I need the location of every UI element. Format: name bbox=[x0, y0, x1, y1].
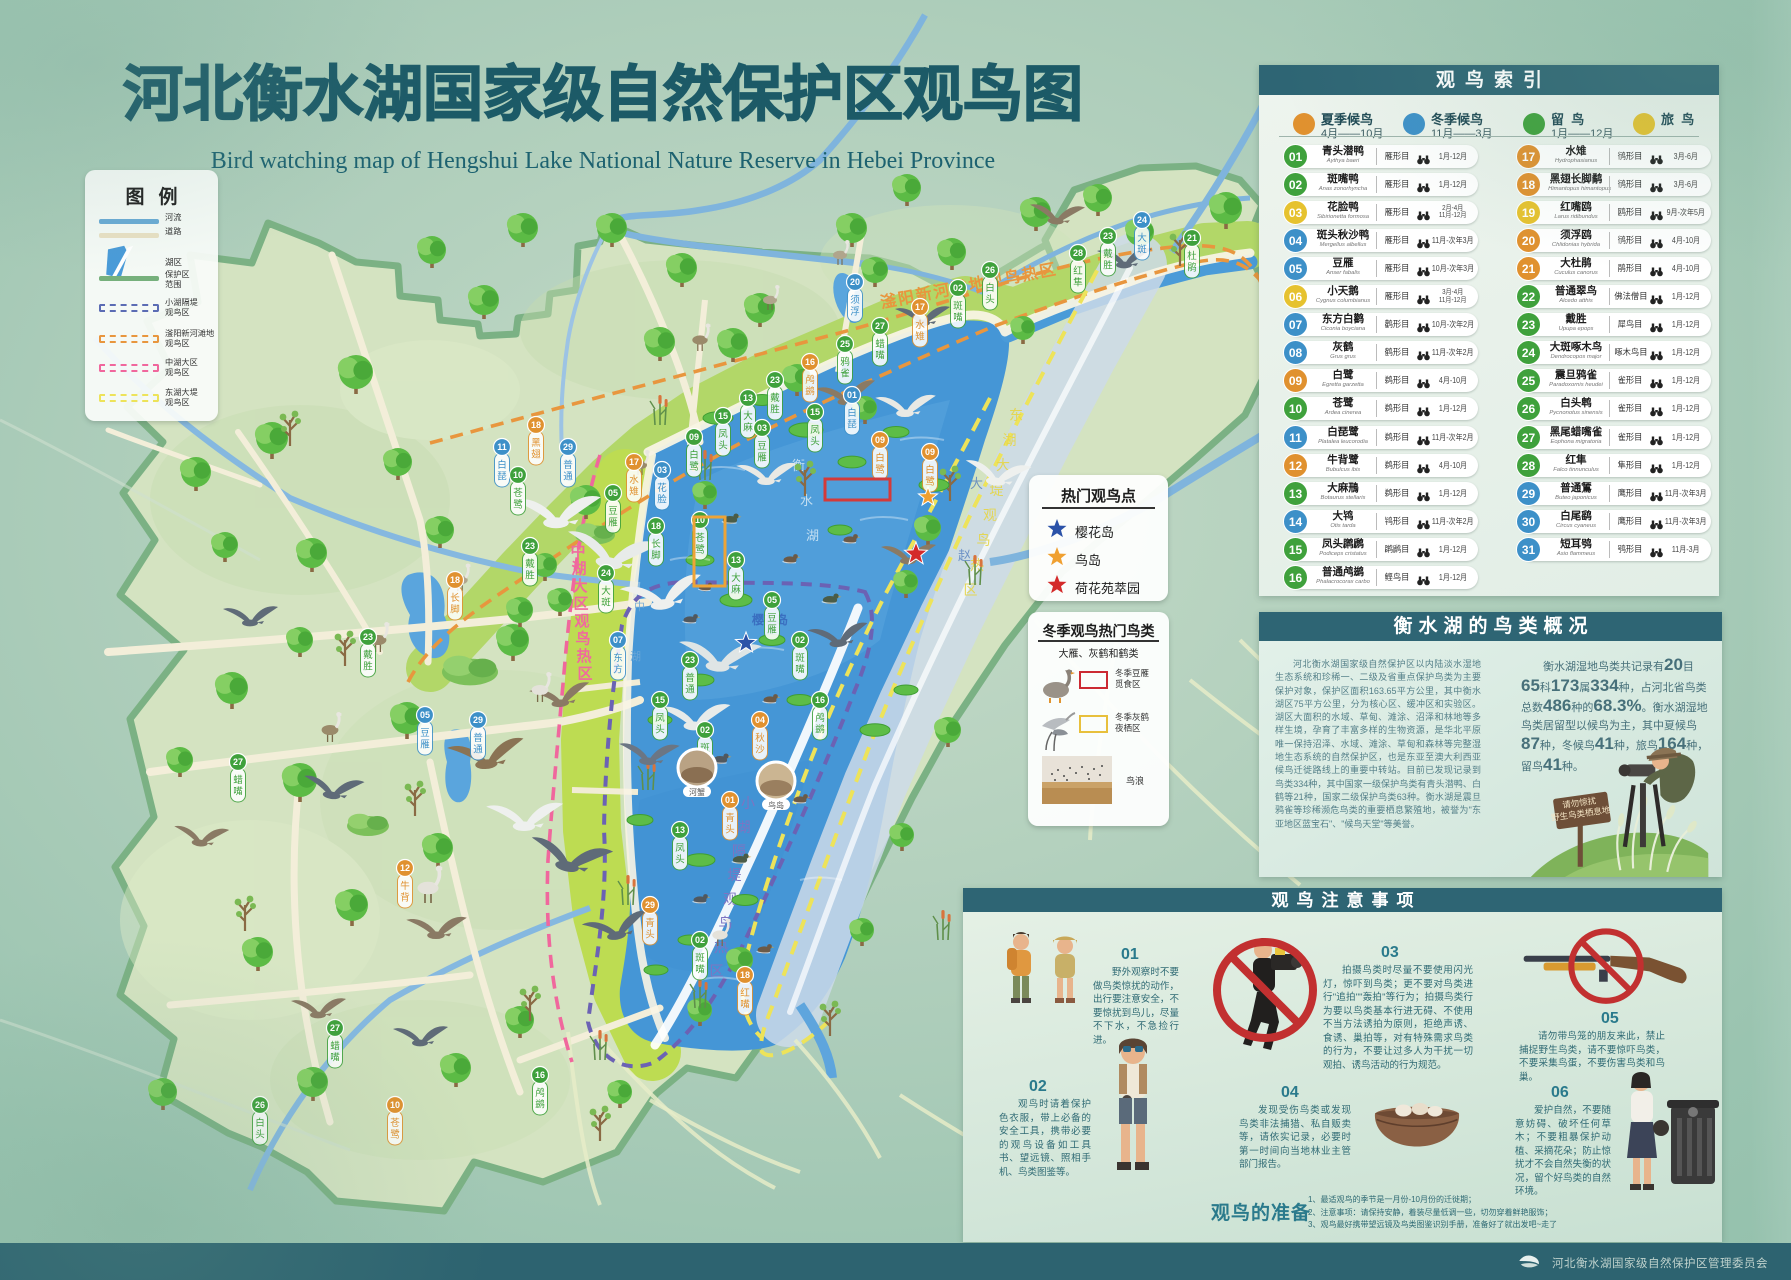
svg-text:戴: 戴 bbox=[1103, 248, 1113, 260]
svg-text:02: 02 bbox=[953, 283, 963, 293]
svg-text:蜡: 蜡 bbox=[233, 774, 243, 786]
svg-text:头: 头 bbox=[655, 724, 665, 736]
svg-text:隼: 隼 bbox=[1073, 277, 1083, 289]
svg-text:通: 通 bbox=[473, 745, 483, 756]
svg-text:沙: 沙 bbox=[755, 745, 765, 756]
svg-text:13: 13 bbox=[731, 555, 741, 565]
svg-text:白: 白 bbox=[847, 407, 857, 419]
svg-text:07: 07 bbox=[613, 635, 623, 645]
svg-text:18: 18 bbox=[450, 575, 460, 585]
svg-text:鹚: 鹚 bbox=[815, 724, 825, 736]
svg-text:雉: 雉 bbox=[629, 486, 639, 498]
svg-text:03: 03 bbox=[757, 423, 767, 433]
svg-text:红: 红 bbox=[1073, 265, 1083, 277]
svg-text:斑: 斑 bbox=[1137, 244, 1147, 256]
svg-text:中: 中 bbox=[570, 542, 585, 560]
svg-text:水: 水 bbox=[800, 493, 813, 508]
svg-text:背: 背 bbox=[400, 892, 410, 904]
svg-text:02: 02 bbox=[795, 635, 805, 645]
svg-text:16: 16 bbox=[535, 1070, 545, 1080]
svg-text:大: 大 bbox=[572, 577, 587, 595]
svg-text:鸬: 鸬 bbox=[805, 374, 815, 386]
svg-text:胜: 胜 bbox=[770, 405, 780, 416]
svg-text:白: 白 bbox=[255, 1117, 265, 1129]
svg-text:29: 29 bbox=[645, 900, 655, 910]
svg-text:湖: 湖 bbox=[571, 561, 586, 578]
svg-text:区: 区 bbox=[573, 596, 588, 613]
svg-text:大: 大 bbox=[601, 585, 611, 597]
svg-text:花: 花 bbox=[657, 482, 667, 494]
svg-text:热: 热 bbox=[576, 647, 591, 665]
svg-text:白: 白 bbox=[985, 282, 995, 294]
svg-text:黑: 黑 bbox=[531, 438, 541, 449]
svg-text:普: 普 bbox=[473, 732, 483, 744]
svg-text:翅: 翅 bbox=[531, 449, 541, 461]
svg-text:堤: 堤 bbox=[728, 867, 742, 883]
svg-text:鸟: 鸟 bbox=[719, 915, 733, 931]
svg-text:02: 02 bbox=[700, 725, 710, 735]
svg-text:15: 15 bbox=[718, 411, 728, 421]
svg-text:斑: 斑 bbox=[695, 952, 705, 964]
svg-text:23: 23 bbox=[770, 375, 780, 385]
svg-text:11: 11 bbox=[497, 442, 507, 452]
svg-text:苍: 苍 bbox=[695, 532, 705, 544]
svg-text:雁: 雁 bbox=[757, 453, 767, 464]
svg-text:17: 17 bbox=[915, 302, 925, 312]
svg-text:湖: 湖 bbox=[1003, 432, 1017, 448]
svg-text:小: 小 bbox=[741, 795, 755, 811]
svg-text:麻: 麻 bbox=[731, 584, 741, 596]
svg-text:牛: 牛 bbox=[400, 880, 410, 892]
svg-text:嘴: 嘴 bbox=[740, 1000, 750, 1011]
svg-text:斑: 斑 bbox=[601, 597, 611, 609]
svg-text:普: 普 bbox=[563, 459, 573, 471]
svg-text:24: 24 bbox=[1137, 215, 1147, 225]
svg-text:02: 02 bbox=[695, 935, 705, 945]
svg-text:18: 18 bbox=[651, 521, 661, 531]
svg-text:蜡: 蜡 bbox=[330, 1040, 340, 1052]
svg-text:雀: 雀 bbox=[840, 368, 850, 380]
svg-text:鹭: 鹭 bbox=[875, 465, 885, 476]
svg-text:鸟: 鸟 bbox=[575, 630, 590, 648]
svg-text:鸟: 鸟 bbox=[977, 532, 991, 548]
svg-text:观: 观 bbox=[983, 507, 997, 523]
svg-text:大: 大 bbox=[1137, 232, 1147, 244]
svg-text:24: 24 bbox=[601, 568, 611, 578]
svg-text:10: 10 bbox=[513, 470, 523, 480]
svg-text:雁: 雁 bbox=[608, 518, 618, 529]
svg-text:01: 01 bbox=[847, 390, 857, 400]
svg-text:东: 东 bbox=[1009, 407, 1023, 423]
svg-text:雁: 雁 bbox=[420, 740, 430, 751]
svg-text:白: 白 bbox=[925, 464, 935, 476]
svg-text:戴: 戴 bbox=[363, 649, 373, 661]
svg-text:白: 白 bbox=[689, 449, 699, 461]
svg-text:26: 26 bbox=[255, 1100, 265, 1110]
svg-text:16: 16 bbox=[815, 695, 825, 705]
svg-text:09: 09 bbox=[875, 435, 885, 445]
svg-text:凤: 凤 bbox=[810, 425, 820, 436]
svg-text:湖: 湖 bbox=[806, 528, 819, 543]
svg-text:09: 09 bbox=[925, 447, 935, 457]
svg-text:长: 长 bbox=[651, 538, 661, 550]
svg-text:苍: 苍 bbox=[513, 487, 523, 499]
svg-text:水: 水 bbox=[629, 474, 639, 486]
svg-text:雁: 雁 bbox=[767, 625, 777, 636]
svg-text:鹭: 鹭 bbox=[689, 462, 699, 473]
svg-text:观: 观 bbox=[574, 613, 589, 630]
svg-text:25: 25 bbox=[840, 339, 850, 349]
svg-text:普: 普 bbox=[685, 672, 695, 684]
svg-text:脚: 脚 bbox=[450, 605, 460, 616]
svg-text:河蟹: 河蟹 bbox=[689, 787, 705, 797]
svg-text:蜡: 蜡 bbox=[875, 338, 885, 350]
svg-text:04: 04 bbox=[755, 715, 765, 725]
svg-text:嘴: 嘴 bbox=[330, 1053, 340, 1064]
svg-text:大: 大 bbox=[970, 476, 983, 491]
svg-text:琵: 琵 bbox=[497, 472, 507, 483]
svg-text:秋: 秋 bbox=[755, 732, 765, 744]
svg-text:鸬: 鸬 bbox=[535, 1087, 545, 1099]
svg-text:18: 18 bbox=[740, 970, 750, 980]
svg-text:09: 09 bbox=[689, 432, 699, 442]
svg-text:18: 18 bbox=[531, 420, 541, 430]
svg-text:15: 15 bbox=[655, 695, 665, 705]
svg-text:戴: 戴 bbox=[525, 558, 535, 570]
svg-text:豆: 豆 bbox=[420, 728, 430, 739]
svg-text:05: 05 bbox=[608, 488, 618, 498]
svg-text:27: 27 bbox=[875, 321, 885, 331]
svg-text:29: 29 bbox=[563, 442, 573, 452]
svg-text:凤: 凤 bbox=[655, 713, 665, 724]
svg-text:热: 热 bbox=[714, 939, 728, 955]
svg-text:10: 10 bbox=[390, 1100, 400, 1110]
svg-text:须: 须 bbox=[850, 295, 860, 306]
svg-text:13: 13 bbox=[675, 825, 685, 835]
svg-text:鹭: 鹭 bbox=[695, 545, 705, 556]
svg-text:01: 01 bbox=[725, 795, 735, 805]
svg-text:16: 16 bbox=[805, 357, 815, 367]
svg-text:豆: 豆 bbox=[608, 506, 618, 517]
svg-text:大: 大 bbox=[743, 410, 753, 422]
svg-text:鹚: 鹚 bbox=[805, 386, 815, 398]
svg-text:21: 21 bbox=[1187, 233, 1197, 243]
svg-text:麻: 麻 bbox=[743, 422, 753, 434]
svg-text:嘴: 嘴 bbox=[233, 787, 243, 798]
svg-text:20: 20 bbox=[850, 277, 860, 287]
svg-text:鹭: 鹭 bbox=[925, 477, 935, 488]
svg-text:05: 05 bbox=[767, 595, 777, 605]
svg-text:嘴: 嘴 bbox=[875, 351, 885, 362]
svg-text:鹭: 鹭 bbox=[390, 1130, 400, 1141]
svg-text:白: 白 bbox=[497, 459, 507, 471]
svg-text:23: 23 bbox=[1103, 231, 1113, 241]
svg-text:15: 15 bbox=[810, 407, 820, 417]
svg-text:头: 头 bbox=[810, 436, 820, 448]
svg-text:23: 23 bbox=[685, 655, 695, 665]
svg-text:胜: 胜 bbox=[525, 571, 535, 582]
svg-text:鹭: 鹭 bbox=[513, 500, 523, 511]
svg-text:29: 29 bbox=[473, 715, 483, 725]
svg-text:斑: 斑 bbox=[953, 300, 963, 312]
svg-text:脸: 脸 bbox=[657, 494, 667, 506]
svg-text:头: 头 bbox=[645, 929, 655, 941]
svg-text:浮: 浮 bbox=[850, 306, 860, 318]
svg-text:湖: 湖 bbox=[737, 819, 751, 835]
svg-text:头: 头 bbox=[985, 294, 995, 306]
svg-text:方: 方 bbox=[613, 664, 623, 676]
svg-text:斑: 斑 bbox=[795, 652, 805, 664]
svg-text:红: 红 bbox=[740, 987, 750, 999]
svg-text:青: 青 bbox=[645, 917, 655, 929]
svg-text:26: 26 bbox=[985, 265, 995, 275]
svg-text:鸦: 鸦 bbox=[840, 356, 850, 368]
svg-text:13: 13 bbox=[743, 393, 753, 403]
svg-text:凤: 凤 bbox=[675, 843, 685, 854]
svg-text:凤: 凤 bbox=[718, 429, 728, 440]
svg-text:嘴: 嘴 bbox=[795, 665, 805, 676]
svg-text:琵: 琵 bbox=[847, 420, 857, 431]
svg-text:青: 青 bbox=[725, 812, 735, 824]
svg-text:鸟岛: 鸟岛 bbox=[768, 800, 784, 810]
svg-text:03: 03 bbox=[657, 465, 667, 475]
svg-text:12: 12 bbox=[400, 863, 410, 873]
svg-text:头: 头 bbox=[255, 1129, 265, 1141]
svg-text:苍: 苍 bbox=[390, 1117, 400, 1129]
svg-text:豆: 豆 bbox=[767, 613, 777, 624]
svg-text:胜: 胜 bbox=[363, 662, 373, 673]
svg-text:大: 大 bbox=[731, 572, 741, 584]
svg-text:27: 27 bbox=[330, 1023, 340, 1033]
svg-text:脚: 脚 bbox=[651, 551, 661, 562]
svg-text:雉: 雉 bbox=[915, 331, 925, 343]
svg-text:头: 头 bbox=[725, 824, 735, 836]
svg-text:嘴: 嘴 bbox=[695, 965, 705, 976]
svg-text:东: 东 bbox=[613, 652, 623, 664]
svg-text:05: 05 bbox=[420, 710, 430, 720]
svg-text:中: 中 bbox=[634, 600, 645, 613]
svg-text:胜: 胜 bbox=[1103, 261, 1113, 272]
svg-text:27: 27 bbox=[233, 757, 243, 767]
svg-text:白: 白 bbox=[875, 452, 885, 464]
svg-text:水: 水 bbox=[915, 319, 925, 331]
svg-text:鸬: 鸬 bbox=[815, 712, 825, 724]
svg-text:头: 头 bbox=[675, 854, 685, 866]
svg-text:23: 23 bbox=[525, 541, 535, 551]
svg-text:戴: 戴 bbox=[770, 392, 780, 404]
svg-text:鹃: 鹃 bbox=[1187, 262, 1197, 274]
svg-text:湖: 湖 bbox=[630, 650, 641, 663]
svg-text:头: 头 bbox=[718, 440, 728, 452]
svg-text:长: 长 bbox=[450, 592, 460, 604]
svg-text:28: 28 bbox=[1073, 248, 1083, 258]
svg-text:赵: 赵 bbox=[958, 548, 971, 563]
svg-text:嘴: 嘴 bbox=[953, 313, 963, 324]
svg-text:通: 通 bbox=[685, 685, 695, 696]
svg-text:区: 区 bbox=[577, 666, 592, 683]
svg-text:通: 通 bbox=[563, 472, 573, 483]
svg-text:17: 17 bbox=[629, 457, 639, 467]
svg-text:杜: 杜 bbox=[1187, 250, 1197, 262]
svg-text:豆: 豆 bbox=[757, 441, 767, 452]
svg-text:23: 23 bbox=[363, 632, 373, 642]
svg-text:鹚: 鹚 bbox=[535, 1099, 545, 1111]
